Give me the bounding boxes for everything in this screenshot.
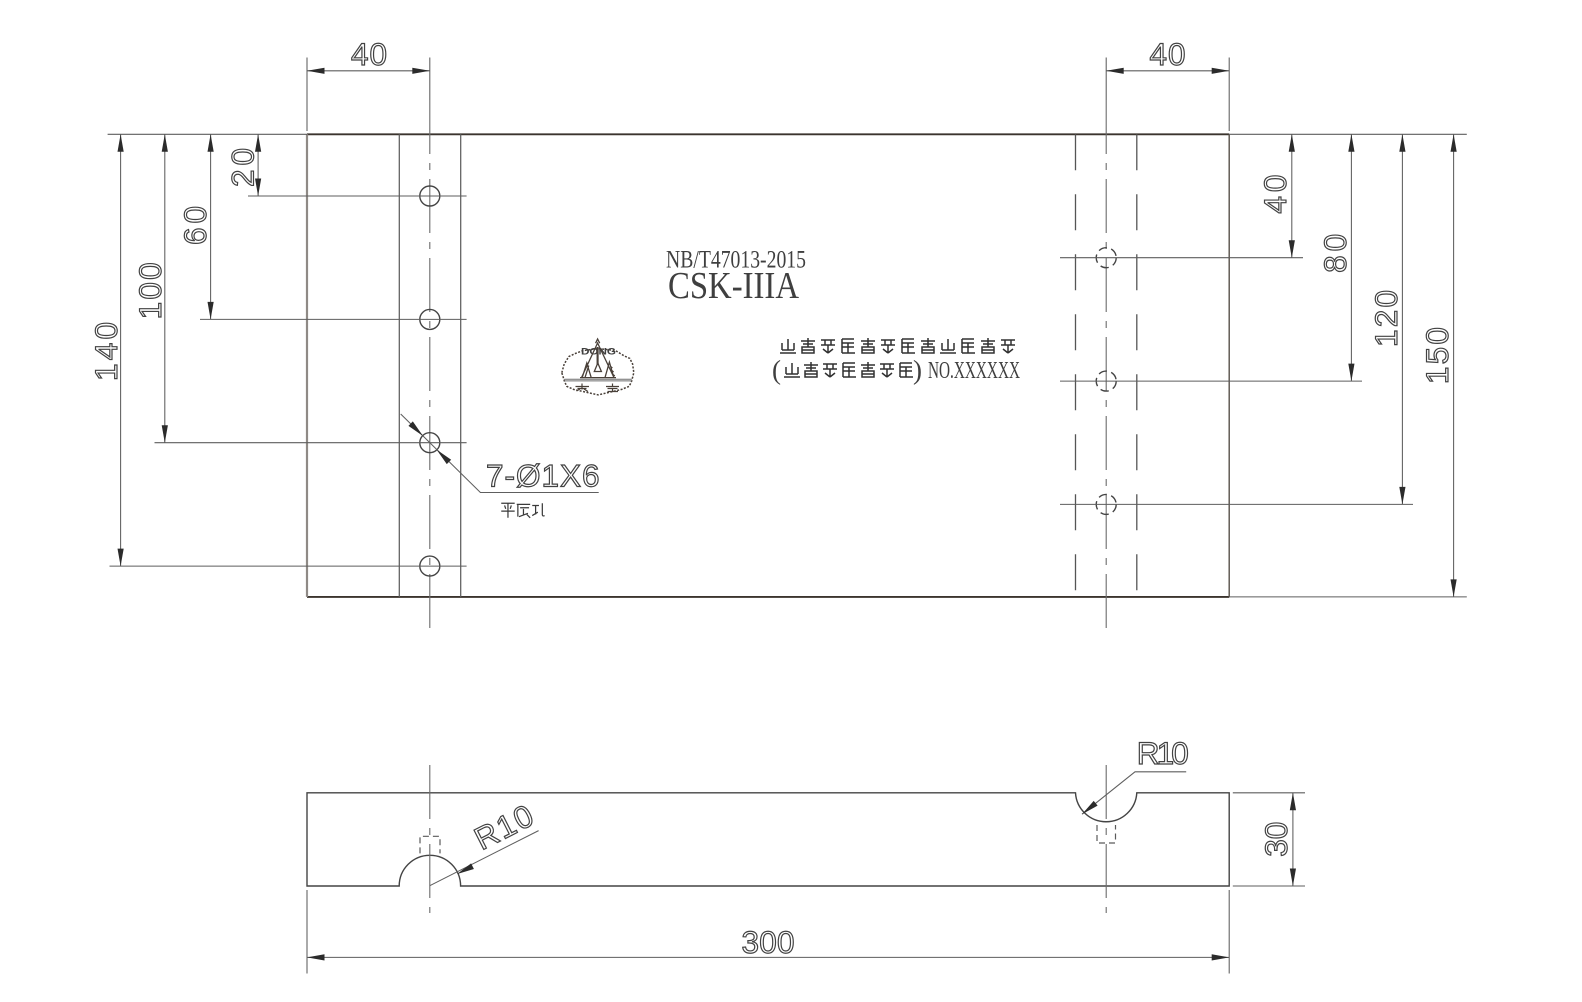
svg-text:40: 40: [1150, 36, 1186, 72]
svg-text:20: 20: [225, 148, 261, 187]
svg-text:(: (: [772, 355, 781, 385]
svg-text:30: 30: [1258, 822, 1294, 857]
svg-text:): ): [913, 355, 922, 385]
svg-text:140: 140: [88, 322, 124, 381]
svg-text:120: 120: [1368, 290, 1404, 347]
svg-text:40: 40: [1257, 175, 1293, 214]
svg-text:7-Ø1X6: 7-Ø1X6: [486, 457, 600, 493]
svg-text:300: 300: [742, 924, 795, 960]
svg-text:CSK-IIIA: CSK-IIIA: [668, 265, 799, 307]
svg-text:150: 150: [1419, 327, 1455, 384]
svg-text:40: 40: [351, 36, 387, 72]
svg-text:60: 60: [177, 206, 213, 245]
svg-text:NO.XXXXXX: NO.XXXXXX: [928, 358, 1020, 384]
svg-text:80: 80: [1317, 234, 1353, 273]
svg-text:R10: R10: [1137, 735, 1189, 771]
svg-text:100: 100: [132, 262, 168, 319]
